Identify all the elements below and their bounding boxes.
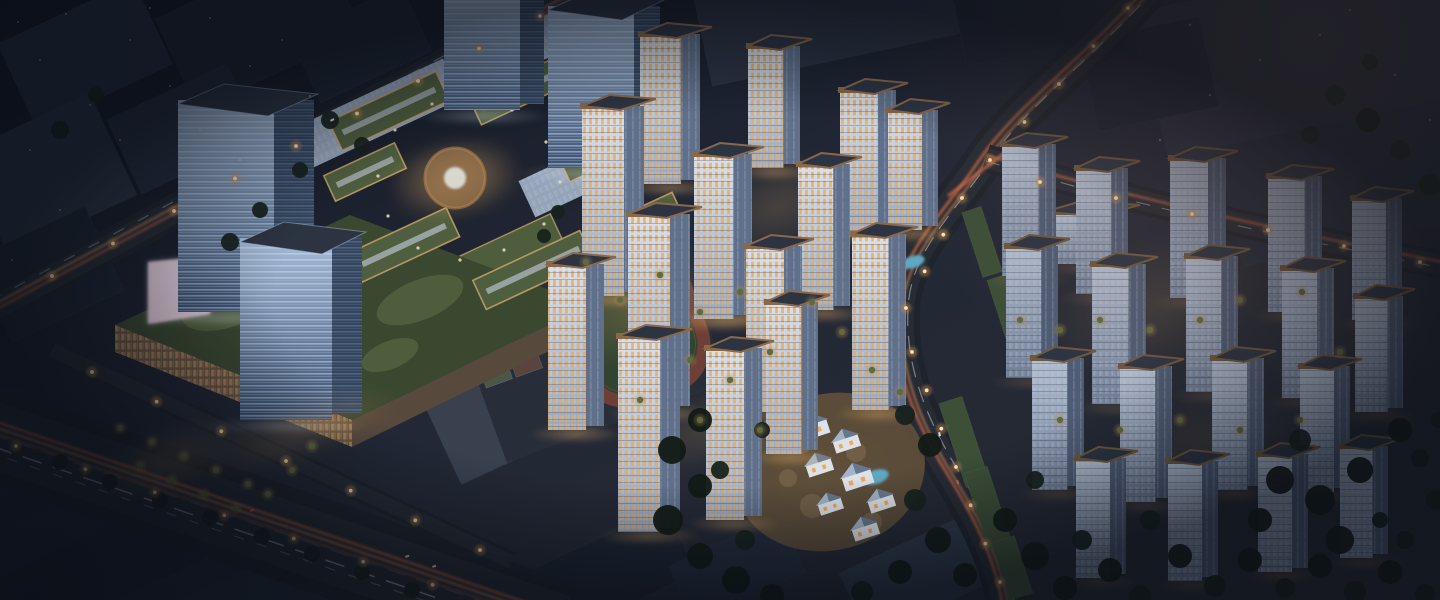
aerial-city-night-render (0, 0, 1440, 600)
render-canvas (0, 0, 1440, 600)
atmosphere (0, 0, 1440, 600)
